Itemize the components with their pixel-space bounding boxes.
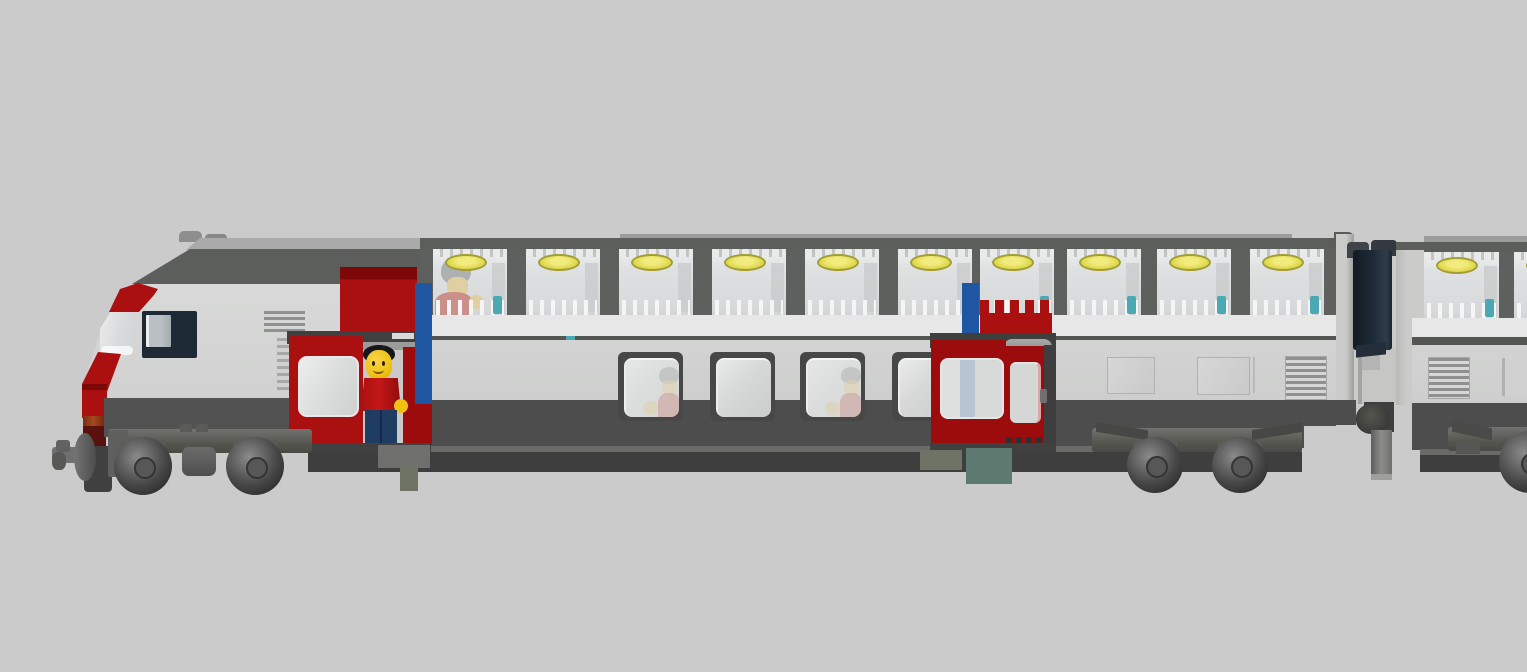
car1-upper-window-band (417, 249, 1336, 316)
axlebox (233, 442, 277, 459)
car2-panel (1505, 358, 1527, 395)
brake-cylinder (182, 447, 216, 476)
wheel (114, 437, 172, 495)
cab-skirt (104, 398, 314, 437)
front-coupler-knob (56, 440, 70, 452)
car1-dark-band (300, 400, 1336, 426)
vent-grille-right (1285, 356, 1327, 400)
door1-step-leg (400, 466, 418, 491)
service-panel-1 (1107, 357, 1155, 394)
car2-underbody-strip (1420, 455, 1527, 472)
wheel-hub (134, 457, 156, 479)
conductor-leg-split (380, 410, 382, 444)
cab-side-window-pane (146, 315, 171, 347)
front-coupler-hook (52, 452, 66, 470)
door1-red-below-blue (415, 404, 432, 445)
car1-end-wall (1336, 234, 1354, 400)
door2-right-window (1010, 362, 1041, 423)
door1-right-leaf-edge (403, 347, 415, 445)
coupling-post (1371, 430, 1392, 476)
front-buffer-disc (74, 433, 96, 481)
car2-upper-window-band (1424, 252, 1527, 318)
wheel-hub (246, 457, 268, 479)
blue-stripe-door1 (415, 283, 432, 404)
render-canvas (0, 0, 1527, 672)
panel-divider-line (1253, 357, 1255, 393)
car2-vent-grille (1428, 357, 1470, 399)
car1-floor-band (431, 315, 1336, 337)
conductor-head (366, 350, 392, 380)
door2-handle (1040, 389, 1047, 403)
blue-stripe-door2 (962, 283, 979, 338)
service-panel-2 (1197, 357, 1250, 395)
axlebox-ribs (238, 445, 255, 456)
coupling-post-foot (1371, 474, 1392, 480)
door1-red-panel-upper (340, 267, 417, 333)
door2-step-2 (966, 448, 1012, 484)
wheel (226, 437, 284, 495)
conductor-eye-left (372, 361, 375, 366)
door1-step (378, 445, 430, 468)
conductor-smile (373, 366, 384, 374)
car2-floor-band (1412, 318, 1527, 338)
car2-deck-line (1412, 337, 1527, 345)
car1-dark-band-lower (300, 425, 1304, 448)
car2-dark-band (1412, 403, 1527, 450)
cab-roof-light-strip (186, 238, 420, 250)
door2-left-window (940, 358, 1004, 419)
axlebox (121, 442, 165, 459)
conductor-eye-right (382, 361, 385, 366)
gangway-bellows (1353, 250, 1392, 350)
door1-leaf-window (298, 356, 359, 417)
axlebox-ribs (126, 445, 143, 456)
car1-end-skirt (1336, 400, 1356, 425)
car1-underbody-strip (308, 452, 1302, 472)
door1-silver-strip (392, 333, 414, 339)
door2-step-1 (920, 450, 962, 470)
